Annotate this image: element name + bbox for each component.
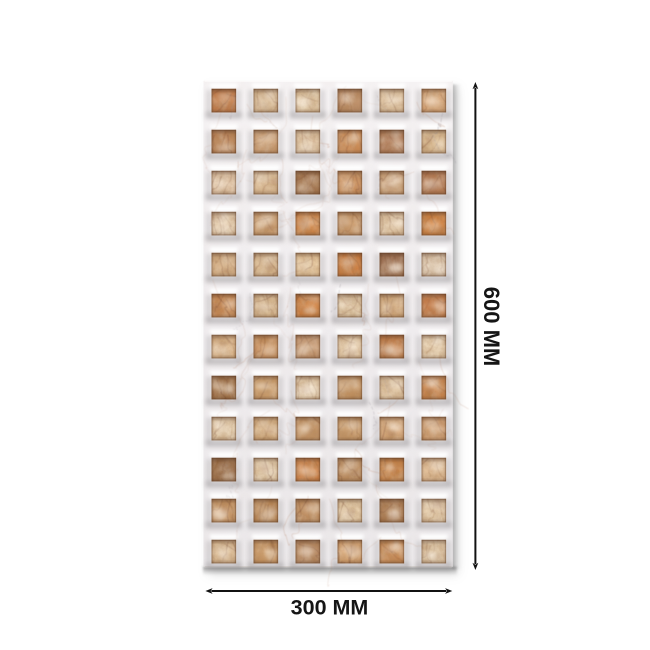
svg-text:300 MM: 300 MM [291, 596, 369, 620]
svg-text:600 MM: 600 MM [479, 287, 504, 366]
